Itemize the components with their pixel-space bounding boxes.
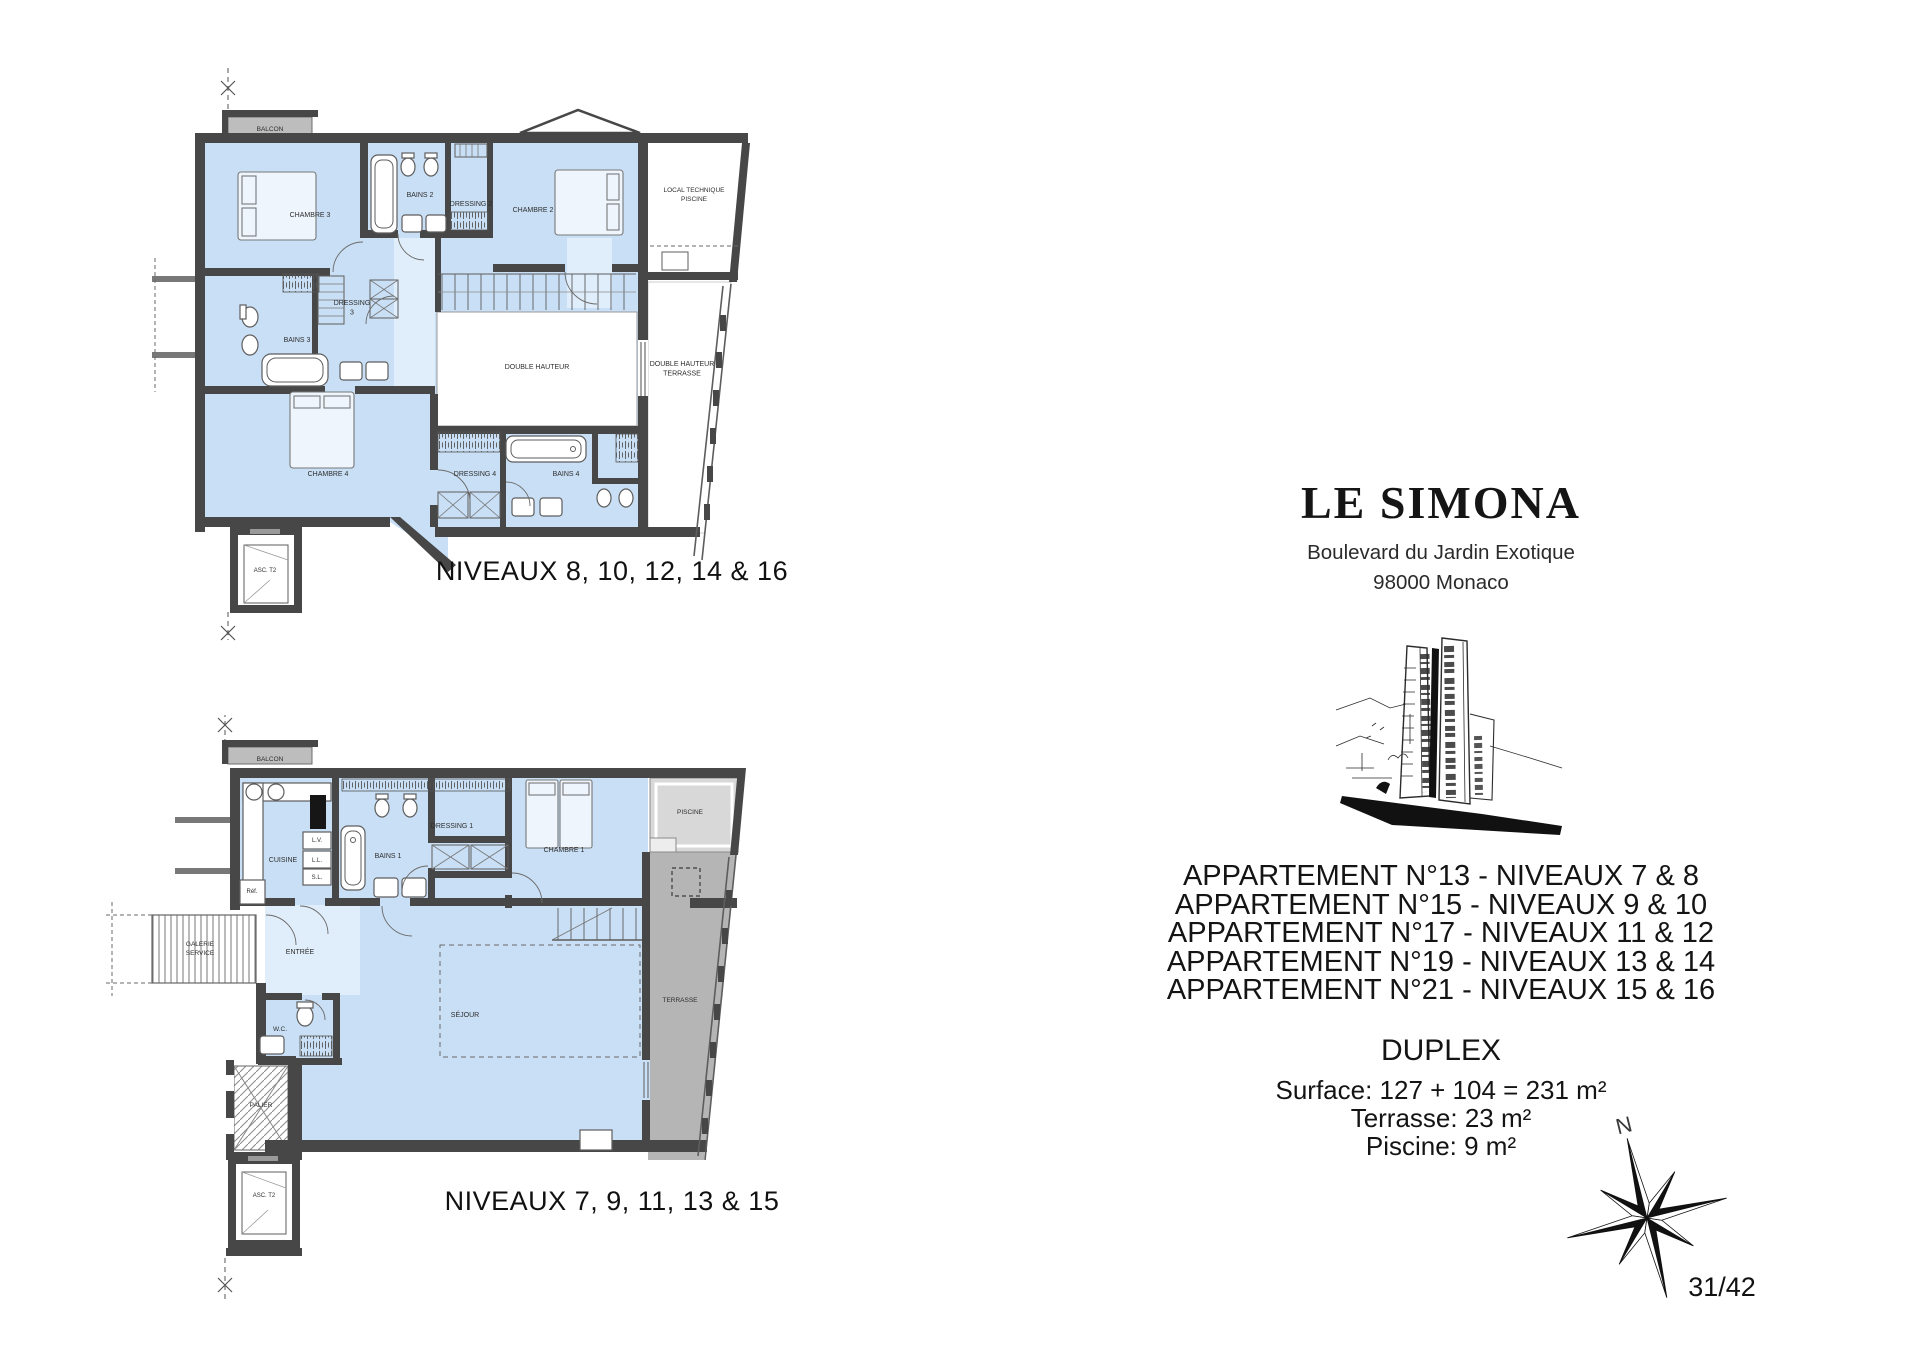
room-label: L.V. bbox=[312, 838, 322, 844]
terrace-door bbox=[642, 1060, 650, 1100]
roof-notch bbox=[520, 110, 640, 133]
project-title: LE SIMONA bbox=[1041, 476, 1841, 529]
page-number: 31/42 bbox=[1652, 1272, 1792, 1303]
room-label: CUISINE bbox=[269, 857, 298, 864]
room-label: W.C. bbox=[273, 1026, 287, 1033]
room-label: DRESSING 4 bbox=[454, 471, 497, 478]
room-label: CHAMBRE 3 bbox=[290, 212, 331, 219]
survey-mark-top bbox=[221, 68, 235, 112]
room-label: TERRASSE bbox=[662, 997, 698, 1004]
survey-mark-bottom bbox=[218, 1258, 232, 1300]
apartment-line: APPARTEMENT N°21 - NIVEAUX 15 & 16 bbox=[1041, 976, 1841, 1005]
floorplan-sheet: { "document": { "page_number": "31/42" }… bbox=[0, 0, 1920, 1357]
apartment-line: APPARTEMENT N°17 - NIVEAUX 11 & 12 bbox=[1041, 919, 1841, 948]
room-label: BAINS 2 bbox=[407, 192, 434, 199]
survey-mark-top bbox=[218, 715, 232, 742]
room-label: CHAMBRE 2 bbox=[513, 207, 554, 214]
room-label: TERRASSE bbox=[663, 371, 701, 378]
room-label: SÉJOUR bbox=[451, 1010, 479, 1019]
room-label: S.L. bbox=[312, 875, 323, 881]
unit-type: DUPLEX bbox=[1041, 1034, 1841, 1068]
room-label: PISCINE bbox=[681, 196, 708, 203]
caption-upper-plan: NIVEAUX 8, 10, 12, 14 & 16 bbox=[112, 556, 1112, 587]
survey-mark-bottom bbox=[221, 612, 235, 640]
room-label: ENTRÉE bbox=[286, 947, 315, 956]
apartment-line: APPARTEMENT N°15 - NIVEAUX 9 & 10 bbox=[1041, 891, 1841, 920]
room-label: DRESSING 2 bbox=[450, 201, 493, 208]
room-label: DRESSING bbox=[334, 300, 371, 307]
room-label: SERVICE bbox=[186, 950, 215, 957]
building-illustration bbox=[1332, 618, 1568, 850]
apartment-line: APPARTEMENT N°19 - NIVEAUX 13 & 14 bbox=[1041, 948, 1841, 977]
plan-lower-level: BALCONCUISINEL.V.L.L.S.L.Réf.BAINS 1DRES… bbox=[100, 715, 800, 1315]
room-label: BAINS 1 bbox=[375, 853, 402, 860]
room-label: DOUBLE HAUTEUR bbox=[505, 364, 570, 371]
room-label: GALERIE bbox=[186, 941, 215, 948]
room-label: BAINS 4 bbox=[553, 471, 580, 478]
caption-lower-plan: NIVEAUX 7, 9, 11, 13 & 15 bbox=[112, 1186, 1112, 1217]
apartment-list: APPARTEMENT N°13 - NIVEAUX 7 & 8APPARTEM… bbox=[1041, 862, 1841, 1005]
room-label: L.L. bbox=[312, 858, 322, 864]
room-label: PALIER bbox=[250, 1102, 273, 1109]
room-label: CHAMBRE 4 bbox=[308, 471, 349, 478]
room-label: DRESSING 1 bbox=[431, 823, 474, 830]
address-line-1: Boulevard du Jardin Exotique bbox=[1041, 538, 1841, 568]
room-label: BALCON bbox=[257, 756, 284, 763]
room-label: Réf. bbox=[246, 889, 257, 895]
upper-sliding-door bbox=[638, 340, 648, 396]
room-label: CHAMBRE 1 bbox=[544, 847, 585, 854]
galerie-lines bbox=[106, 902, 152, 996]
room-label: BALCON bbox=[257, 126, 284, 133]
room-label: BAINS 3 bbox=[284, 337, 311, 344]
compass-north-label: N bbox=[1613, 1111, 1634, 1139]
room-label: PISCINE bbox=[677, 809, 704, 816]
address-line-2: 98000 Monaco bbox=[1041, 568, 1841, 598]
room-label: 3 bbox=[350, 310, 354, 317]
apartment-line: APPARTEMENT N°13 - NIVEAUX 7 & 8 bbox=[1041, 862, 1841, 891]
room-label: DOUBLE HAUTEUR bbox=[650, 361, 715, 368]
room-label: LOCAL TECHNIQUE bbox=[663, 187, 725, 194]
project-address: Boulevard du Jardin Exotique 98000 Monac… bbox=[1041, 538, 1841, 598]
